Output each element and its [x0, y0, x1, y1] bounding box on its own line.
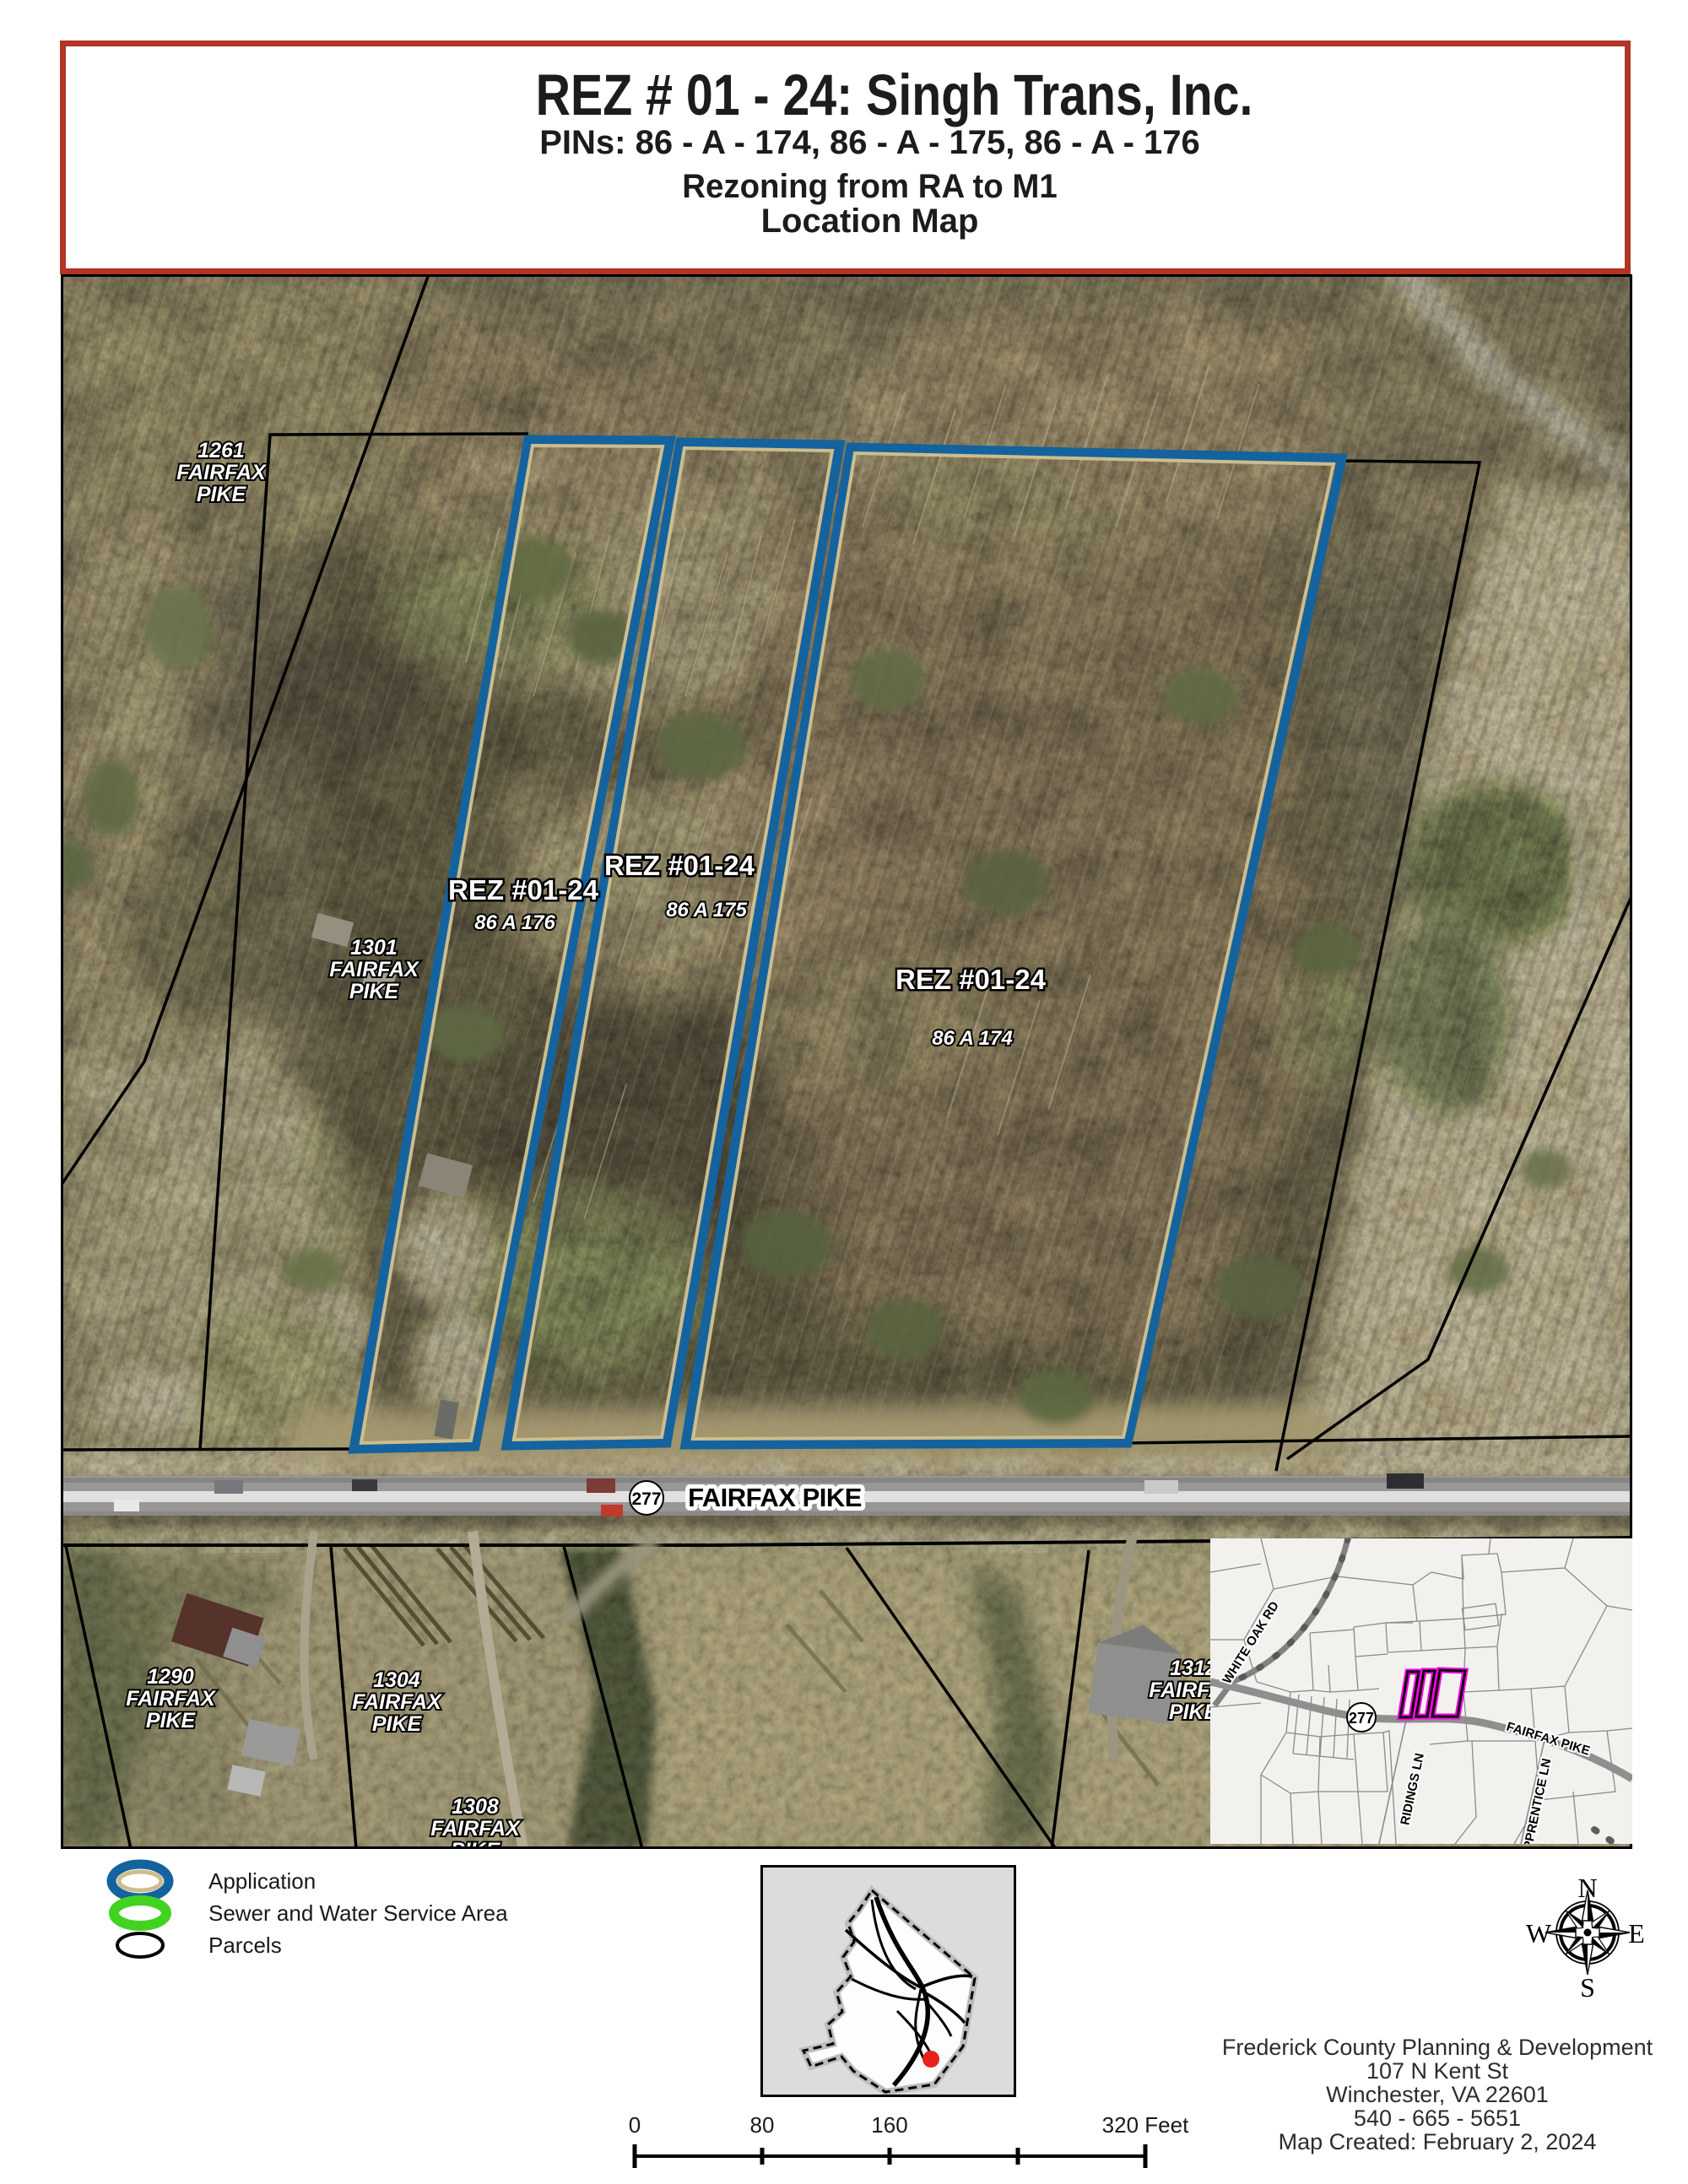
svg-text:PIKE: PIKE [197, 483, 247, 506]
svg-text:N: N [1577, 1873, 1597, 1903]
svg-text:Parcels: Parcels [208, 1933, 282, 1958]
svg-text:1304: 1304 [373, 1668, 420, 1692]
svg-text:PIKE: PIKE [451, 1839, 501, 1849]
svg-text:RIDINGS LN: RIDINGS LN [1398, 1752, 1427, 1826]
svg-text:FAIRFAX: FAIRFAX [176, 461, 267, 484]
svg-text:1261: 1261 [197, 439, 245, 462]
svg-text:PIKE: PIKE [146, 1709, 197, 1733]
svg-text:APPRENTICE LN: APPRENTICE LN [1519, 1757, 1555, 1844]
svg-text:FAIRFAX PIKE: FAIRFAX PIKE [1505, 1720, 1592, 1759]
svg-text:80: 80 [750, 2114, 775, 2138]
svg-text:W: W [1526, 1918, 1552, 1949]
svg-text:REZ #01-24: REZ #01-24 [895, 964, 1047, 995]
svg-text:86 A 176: 86 A 176 [474, 911, 555, 934]
svg-text:FAIRFAX PIKE: FAIRFAX PIKE [688, 1483, 862, 1512]
svg-text:Sewer and Water Service Area: Sewer and Water Service Area [208, 1900, 508, 1926]
svg-text:FAIRFAX: FAIRFAX [430, 1817, 521, 1841]
svg-text:86 A 174: 86 A 174 [932, 1027, 1013, 1050]
svg-text:Application: Application [208, 1868, 316, 1894]
svg-text:REZ #01-24: REZ #01-24 [448, 874, 599, 905]
svg-text:FAIRFAX: FAIRFAX [352, 1690, 442, 1714]
svg-text:FAIRFAX: FAIRFAX [126, 1687, 216, 1711]
svg-text:0: 0 [629, 2114, 641, 2138]
svg-text:FAIRFAX: FAIRFAX [329, 958, 419, 981]
svg-text:S: S [1580, 1972, 1595, 2003]
svg-text:320 Feet: 320 Feet [1102, 2114, 1189, 2138]
svg-text:277: 277 [631, 1489, 661, 1509]
svg-text:277: 277 [1349, 1710, 1374, 1727]
svg-text:PIKE: PIKE [372, 1712, 423, 1736]
svg-text:E: E [1628, 1918, 1645, 1949]
svg-text:160: 160 [871, 2114, 907, 2138]
svg-text:PIKE: PIKE [349, 980, 400, 1003]
svg-text:1301: 1301 [350, 936, 398, 960]
svg-text:86 A 175: 86 A 175 [666, 899, 747, 922]
svg-text:1308: 1308 [452, 1795, 499, 1819]
svg-text:1290: 1290 [147, 1665, 194, 1689]
svg-text:REZ #01-24: REZ #01-24 [604, 850, 755, 881]
